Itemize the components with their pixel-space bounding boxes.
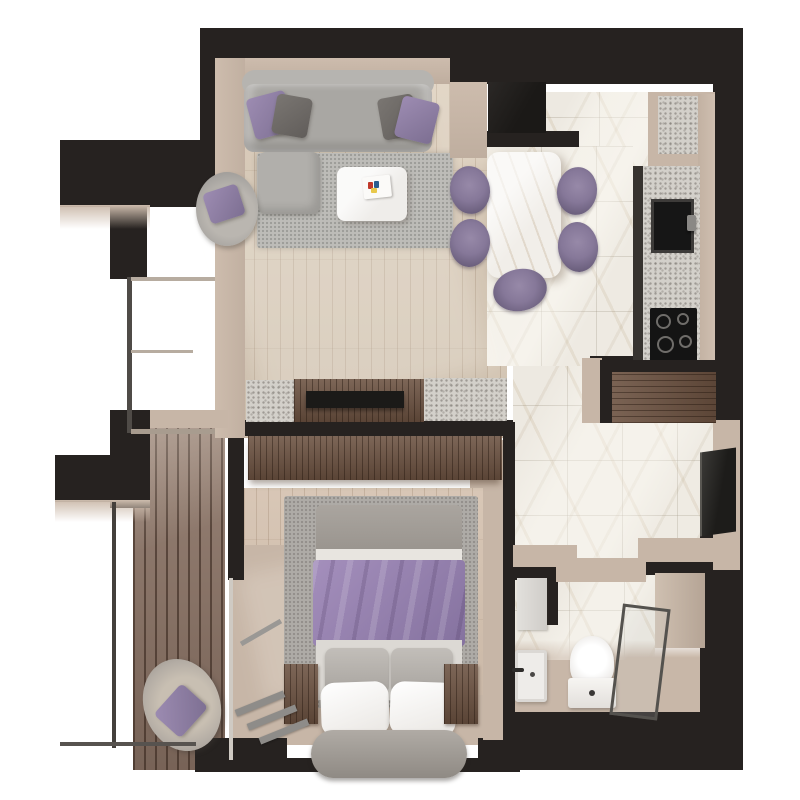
wall-top-right xyxy=(430,28,743,84)
sink-faucet xyxy=(512,668,524,672)
bedroom-wardrobe xyxy=(248,436,502,480)
sink-drain xyxy=(530,672,535,677)
toilet-flush-button xyxy=(589,690,595,696)
decor-book-blue xyxy=(374,181,379,188)
wall-bath-stub xyxy=(546,578,558,625)
window-mullion xyxy=(131,277,215,281)
wall-left-wing xyxy=(55,455,150,502)
balcony-railing xyxy=(112,502,116,748)
hall-wardrobe-trim-left xyxy=(600,360,612,423)
hall-wardrobe-trim-top xyxy=(600,360,716,372)
balcony-railing-bottom xyxy=(60,742,196,746)
wall-bottom-bathroom xyxy=(515,712,743,770)
faucet xyxy=(687,215,696,231)
bed-blanket-purple xyxy=(313,560,465,646)
door-threshold xyxy=(556,558,646,582)
bathroom-door-panel xyxy=(517,578,547,630)
wall-divider xyxy=(238,420,513,436)
nightstand-right xyxy=(444,664,478,724)
tv xyxy=(306,391,404,408)
decor-book-yellow xyxy=(371,188,377,193)
nightstand-left xyxy=(284,664,318,724)
kitchen-cabinet-strip xyxy=(633,166,643,364)
ottoman xyxy=(258,152,320,214)
wall-bedroom-right xyxy=(503,422,515,753)
wall-face-balcony-top xyxy=(150,410,228,428)
divider-granite-left xyxy=(246,380,296,422)
bed-duvet-foot xyxy=(316,505,462,555)
bed-pillow-left xyxy=(320,681,390,737)
kitchen-tall-cabinet xyxy=(488,82,546,133)
dining-table xyxy=(487,152,561,278)
window-frame-vertical xyxy=(127,277,132,433)
burner-icon xyxy=(657,336,674,353)
burner-icon xyxy=(656,314,671,329)
wall-face-kitchen-left xyxy=(450,82,487,158)
burner-icon xyxy=(677,313,689,325)
hall-wardrobe xyxy=(612,372,716,423)
window-mullion xyxy=(131,429,215,434)
wall-face-bath-topright xyxy=(638,538,715,562)
wall-tv-panel xyxy=(700,447,736,536)
wall-face-hall-wardrobe xyxy=(582,358,602,423)
burner-icon xyxy=(679,335,692,348)
ledge-left-lower xyxy=(55,500,150,522)
bed-headboard xyxy=(311,730,467,778)
wall-bedroom-left xyxy=(228,420,244,580)
floorplan-canvas xyxy=(0,0,800,800)
wall-face-left xyxy=(215,58,245,438)
ledge-top-left xyxy=(60,205,150,229)
window-mullion xyxy=(131,350,193,353)
divider-granite-right xyxy=(424,378,507,421)
wall-face-kitchen-right xyxy=(698,94,715,366)
wall-kitchen-stub xyxy=(487,131,579,147)
sofa-pillow-gray-left xyxy=(271,93,313,139)
